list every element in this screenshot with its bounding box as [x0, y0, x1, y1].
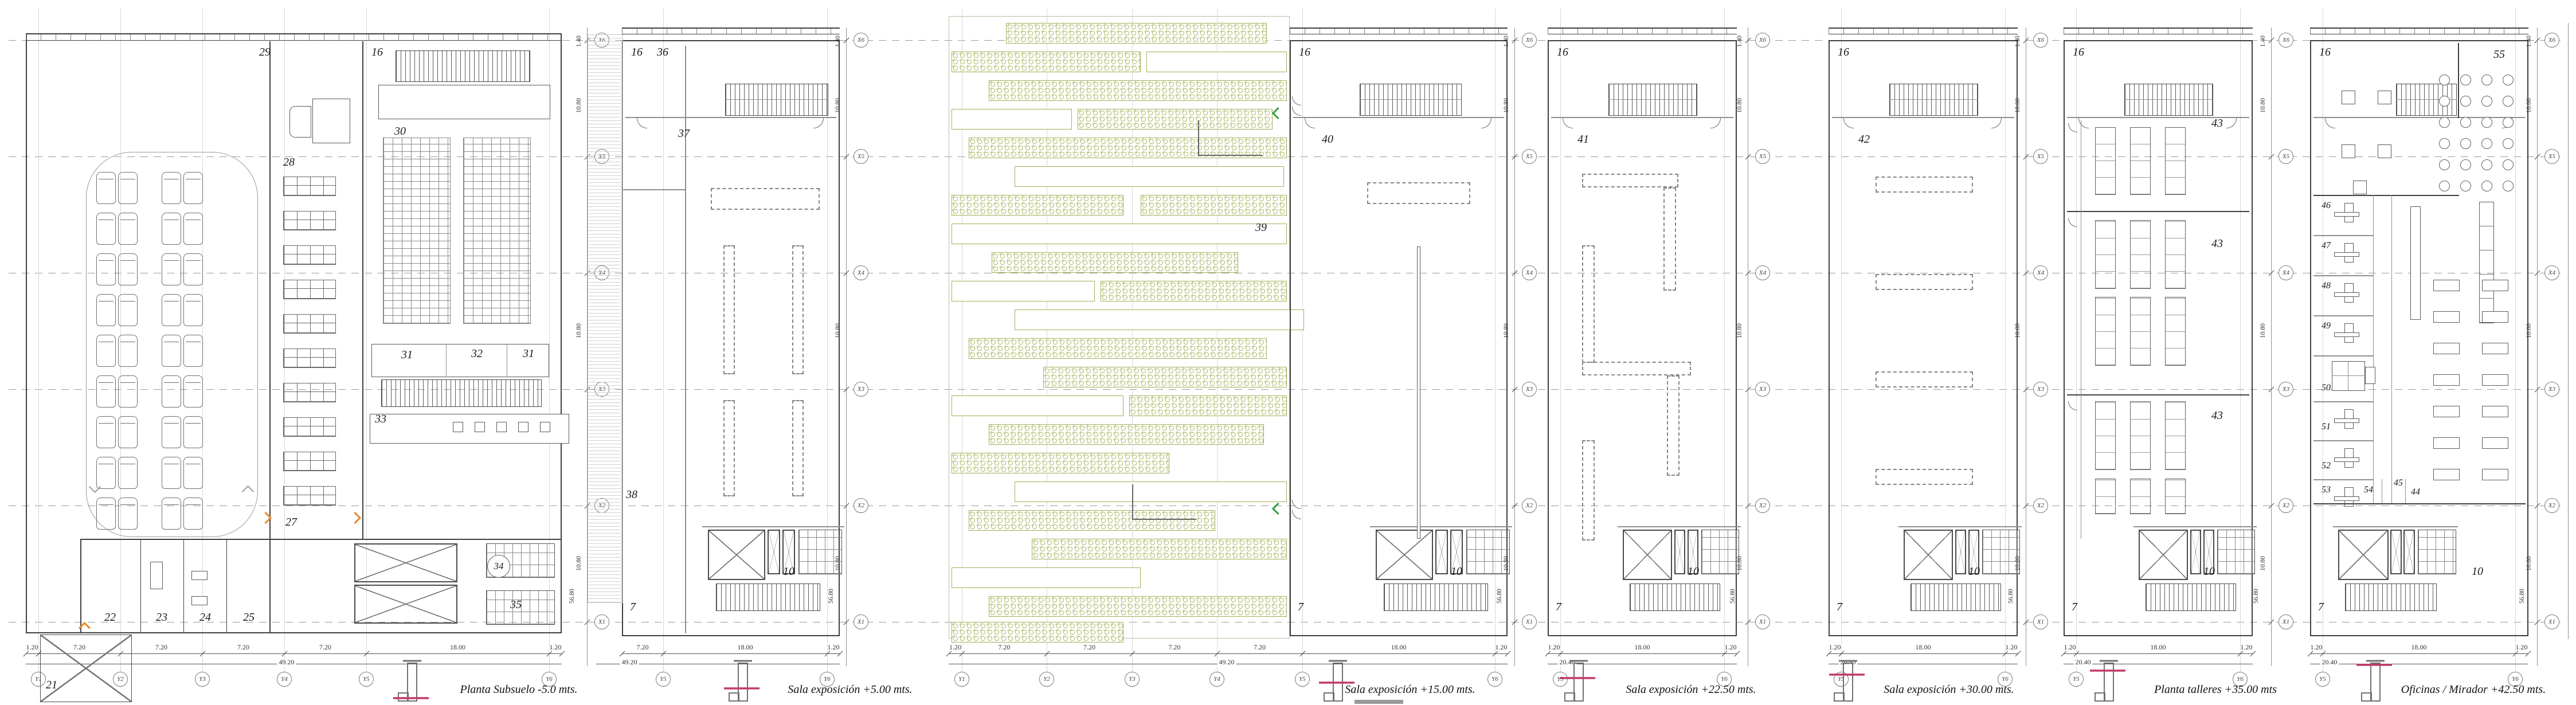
dining-table — [2433, 469, 2460, 480]
architectural-plan-sheet: 1.207.207.207.207.2018.001.2049.20Y1Y2Y3… — [0, 0, 2576, 705]
round-table — [2460, 138, 2471, 149]
plan-title: Sala exposición +30.00 mts. — [1884, 683, 2014, 696]
grid-bubble-row: X2 — [854, 498, 868, 513]
dimension-label: 18.00 — [2151, 643, 2166, 652]
dimension-label: 7.20 — [319, 643, 331, 652]
section-level-marker — [1318, 656, 1355, 704]
grid-bubble-row: X2 — [1755, 498, 1770, 513]
service-band-wall — [80, 539, 562, 540]
core-stair-run — [716, 583, 820, 611]
parking-car — [118, 416, 138, 448]
room-label: 7 — [2318, 601, 2324, 614]
plan-title: Planta talleres +35.00 mts — [2154, 683, 2277, 696]
sheet-edge-ruler — [2568, 23, 2569, 639]
exhibit-partition — [1582, 245, 1595, 363]
workshop-table — [2130, 479, 2151, 514]
dining-table — [2433, 437, 2460, 449]
parking-car — [96, 457, 116, 489]
elevator-shaft — [2338, 530, 2389, 580]
stair-mid-landing — [1889, 99, 1978, 100]
cloakroom-partition — [507, 344, 507, 377]
display-bar — [2410, 206, 2421, 320]
room-label: 22 — [104, 611, 116, 624]
tower-lobby-wall — [2313, 117, 2525, 118]
elevator-shaft — [2390, 530, 2401, 574]
stair-mid-landing — [725, 99, 828, 100]
grid-bubble-row: X2 — [2279, 498, 2293, 513]
grid-bubble-row: X2 — [2544, 498, 2559, 513]
grid-bubble-row: X5 — [2033, 149, 2048, 164]
green-terrace-band — [1032, 539, 1287, 559]
room-label: 41 — [1577, 133, 1589, 146]
corridor-wall — [362, 41, 363, 539]
room-label: 10 — [2472, 565, 2483, 578]
counter-stool — [496, 422, 507, 432]
round-table — [2481, 75, 2492, 85]
plan-title: Sala exposición +5.00 mts. — [788, 683, 912, 696]
elevator-shaft — [1674, 530, 1685, 574]
parking-car — [162, 375, 181, 408]
tower-roof-edge — [1829, 28, 2018, 34]
workshop-table — [2130, 401, 2151, 470]
work-table — [191, 596, 208, 605]
exhibit-partition — [1663, 187, 1676, 291]
counter-stool — [540, 422, 550, 432]
terrace-hatch-strip — [588, 34, 623, 603]
grid-bubble-row: X3 — [2279, 382, 2293, 397]
green-terrace-band — [992, 252, 1238, 273]
round-table — [2503, 181, 2514, 191]
room-label: 27 — [285, 516, 297, 529]
mid-stair-run — [381, 379, 542, 407]
round-table — [2481, 159, 2492, 170]
dining-table — [2482, 406, 2508, 417]
room-label: 39 — [1255, 221, 1267, 234]
round-table — [2460, 96, 2471, 107]
dimension-label: 1.20 — [1725, 643, 1737, 652]
grid-bubble-row: X5 — [1755, 149, 1770, 164]
counter-stool — [518, 422, 528, 432]
round-table — [2481, 117, 2492, 128]
parking-car — [162, 416, 181, 448]
round-table — [2503, 96, 2514, 107]
dimension-label: 18.00 — [1635, 643, 1650, 652]
exhibit-case — [711, 188, 820, 210]
room-label: 16 — [2319, 46, 2331, 59]
wc-block — [1982, 530, 2020, 574]
office-desk — [2334, 332, 2359, 337]
dimension-line — [1829, 653, 2018, 654]
dimension-total-label: 49.20 — [620, 658, 639, 667]
grid-bubble-row: X1 — [854, 614, 868, 629]
plan-title: Sala exposición +15.00 mts. — [1345, 683, 1475, 696]
dining-table — [2482, 311, 2508, 323]
room-label: 10 — [1968, 565, 1980, 578]
scale-bar — [1354, 700, 1403, 704]
dimension-total-line — [2310, 664, 2528, 664]
room-label: 45 — [2394, 478, 2403, 488]
room-label: 10 — [2203, 565, 2215, 578]
parking-car — [162, 498, 181, 530]
storage-rack — [283, 348, 336, 368]
room-label: 42 — [1858, 133, 1870, 146]
parking-car — [183, 416, 203, 448]
section-level-marker — [723, 656, 760, 704]
elevator-shaft — [1955, 530, 1966, 574]
level-dim-label: 10.80 — [1736, 98, 1743, 113]
tower-lobby-wall — [1832, 117, 2014, 118]
workshop-table — [2130, 127, 2151, 195]
dimension-label: 1.20 — [2516, 643, 2528, 652]
counter-stool — [453, 422, 463, 432]
parking-car — [96, 335, 116, 367]
exhibit-partition — [1667, 375, 1680, 476]
room-label: 44 — [2411, 487, 2420, 498]
room-label: 50 — [2321, 383, 2331, 393]
parking-car — [162, 172, 181, 204]
workshop-table — [2095, 401, 2116, 470]
auditorium-seating-right — [463, 138, 531, 324]
dimension-label: 7.20 — [237, 643, 249, 652]
grid-bubble-row: X3 — [1522, 382, 1537, 397]
parking-car — [96, 213, 116, 245]
room-label: 16 — [2073, 46, 2084, 59]
grid-bubble-row: X3 — [2033, 382, 2048, 397]
elevator-shaft — [1623, 530, 1673, 580]
annex-wall — [623, 189, 685, 190]
grid-bubble-column: Y1 — [954, 672, 969, 687]
room-label: 31 — [401, 348, 413, 362]
workshop-table — [2130, 297, 2151, 366]
truck-cab — [289, 106, 311, 138]
core-wall — [702, 526, 844, 527]
service-room-wall — [269, 539, 271, 633]
grid-bubble-column: Y5 — [2069, 672, 2084, 687]
office-desk — [2365, 367, 2375, 384]
dimension-label: 1.20 — [2311, 643, 2323, 652]
dimension-label: 7.20 — [999, 643, 1011, 652]
dimension-label: 18.00 — [2411, 643, 2427, 652]
green-terrace-band — [952, 109, 1072, 130]
dimension-line — [949, 653, 1508, 654]
level-dim-label: 1.40 — [576, 36, 582, 47]
dimension-label: 1.20 — [1548, 643, 1560, 652]
parking-car — [162, 213, 181, 245]
office-partition — [2313, 315, 2373, 316]
dimension-label: 1.20 — [2064, 643, 2076, 652]
dimension-label: 7.20 — [1083, 643, 1095, 652]
workshop-table — [2165, 127, 2186, 195]
tower-roof-edge — [622, 28, 840, 34]
dimension-total-label: 49.20 — [277, 658, 296, 667]
parking-car — [183, 498, 203, 530]
office-partition — [2313, 401, 2373, 402]
grid-bubble-column: Y4 — [277, 672, 292, 687]
dining-table — [2433, 311, 2460, 323]
exhibit-case — [1367, 182, 1470, 204]
green-terrace-band — [989, 424, 1264, 445]
level-dimension-line — [2537, 28, 2538, 666]
truck-trailer — [312, 99, 350, 143]
green-terrace-band — [969, 510, 1215, 531]
round-table — [2460, 75, 2471, 85]
elevator-shaft — [1435, 530, 1448, 574]
grid-bubble-row: X4 — [2279, 265, 2293, 280]
room-label: 36 — [657, 46, 668, 59]
parking-car — [96, 375, 116, 408]
square-table — [2342, 144, 2355, 158]
parking-car — [118, 457, 138, 489]
office-desk — [2334, 252, 2359, 257]
exhibit-case — [723, 245, 735, 374]
room-label: 49 — [2321, 321, 2331, 331]
round-table — [2439, 159, 2450, 170]
exhibit-case — [1876, 274, 1973, 290]
room-label: 53 — [2321, 485, 2331, 495]
section-level-marker — [393, 656, 429, 704]
level-dimension-line — [846, 28, 847, 666]
parking-car — [162, 294, 181, 326]
dining-table — [2433, 374, 2460, 386]
round-table — [2439, 181, 2450, 191]
dimension-label: 1.20 — [2241, 643, 2253, 652]
round-table — [2439, 117, 2450, 128]
counter-stool — [475, 422, 485, 432]
round-table — [2503, 75, 2514, 85]
exhibit-case — [1876, 469, 1973, 485]
room-label: 37 — [678, 127, 690, 140]
parking-car — [183, 253, 203, 285]
room-label: 25 — [243, 611, 255, 624]
round-table — [2481, 138, 2492, 149]
parking-car — [183, 172, 203, 204]
dining-table — [2482, 374, 2508, 386]
terrace-step-line — [1198, 155, 1262, 156]
storage-rack — [283, 211, 336, 230]
meeting-table-line — [2348, 361, 2348, 391]
tower-roof-edge — [2310, 28, 2528, 34]
green-terrace-band — [952, 567, 1141, 588]
elevator-shaft — [2139, 530, 2189, 580]
workshop-wall — [2067, 211, 2249, 212]
grid-bubble-row: X6 — [2544, 33, 2559, 48]
grid-bubble-row: X1 — [2544, 614, 2559, 629]
room-label: 46 — [2321, 201, 2331, 211]
dining-table — [2433, 406, 2460, 417]
room-label: 38 — [626, 488, 637, 502]
office-corridor-wall — [2391, 195, 2392, 503]
tower-stair-run — [1360, 84, 1462, 116]
parking-car — [183, 335, 203, 367]
exhibit-partition — [1582, 440, 1595, 540]
parking-car — [183, 213, 203, 245]
level-dimension-line — [1748, 28, 1748, 666]
room-label: 40 — [1322, 133, 1333, 146]
dimension-line — [2064, 653, 2253, 654]
dining-table — [2433, 343, 2460, 354]
level-dim-label: 1.40 — [2260, 36, 2266, 47]
round-table — [2460, 159, 2471, 170]
room-label: 54 — [2364, 485, 2373, 495]
room-label: 55 — [2493, 48, 2505, 61]
grid-bubble-column: Y5 — [1295, 672, 1310, 687]
room-label: 24 — [199, 611, 211, 624]
grid-bubble-column: Y3 — [195, 672, 210, 687]
parking-car — [183, 375, 203, 408]
dimension-total-label: 49.20 — [1217, 658, 1236, 667]
office-partition — [2313, 275, 2373, 276]
section-level-marker — [2089, 656, 2126, 704]
grid-bubble-row: X5 — [2544, 149, 2559, 164]
storage-rack — [283, 245, 336, 265]
parking-car — [162, 457, 181, 489]
level-dim-label: 1.40 — [1736, 36, 1743, 47]
dimension-line — [2310, 653, 2528, 654]
core-wall — [1618, 526, 1741, 527]
dimension-total-label: 20.40 — [2320, 658, 2339, 667]
green-terrace-band — [952, 195, 1123, 216]
round-table — [2503, 117, 2514, 128]
room-label: 30 — [394, 125, 406, 138]
office-partition — [2313, 479, 2373, 480]
tower-stair-run — [725, 84, 828, 116]
green-terrace-band — [952, 453, 1169, 473]
storage-rack — [283, 177, 336, 196]
room-label: 29 — [259, 46, 271, 59]
level-dim-label: 10.80 — [576, 98, 582, 113]
room-label: 33 — [375, 413, 386, 426]
dimension-label: 18.00 — [738, 643, 753, 652]
workshop-table — [2165, 401, 2186, 470]
grid-bubble-row: X3 — [1755, 382, 1770, 397]
room-label: 47 — [2321, 241, 2331, 251]
green-terrace-band — [1015, 481, 1287, 502]
grid-bubble-column: Y6 — [1487, 672, 1502, 687]
grid-bubble-row: X6 — [2279, 33, 2293, 48]
dining-table — [2482, 343, 2508, 354]
dimension-label: 7.20 — [637, 643, 649, 652]
grid-bubble-row: X6 — [2033, 33, 2048, 48]
meeting-table-line — [2332, 375, 2365, 376]
office-partition — [2313, 235, 2373, 236]
storage-rack — [283, 417, 336, 437]
square-table — [2378, 144, 2391, 158]
square-table — [2342, 91, 2355, 104]
workshop-table — [2095, 479, 2116, 514]
green-terrace-band — [1006, 23, 1267, 44]
stair-mid-landing — [1360, 99, 1462, 100]
dimension-label: 1.20 — [1829, 643, 1841, 652]
dimension-label: 18.00 — [1916, 643, 1931, 652]
exhibit-case — [792, 245, 804, 374]
machine-unit — [150, 562, 163, 589]
square-table — [2353, 181, 2367, 194]
level-dim-label: 10.80 — [576, 323, 582, 338]
square-table — [2378, 91, 2391, 104]
dining-zone-wall — [2313, 503, 2526, 504]
wc-block — [798, 530, 842, 574]
tower-lobby-wall — [625, 117, 836, 118]
tower-stair-run — [1608, 84, 1697, 116]
exhibit-partition — [1582, 362, 1691, 375]
level-dim-label: 10.80 — [2260, 556, 2266, 571]
green-terrace-band — [952, 52, 1141, 72]
elevator-shaft — [708, 530, 765, 580]
room-label: 48 — [2321, 281, 2331, 291]
dining-table — [2433, 280, 2460, 291]
dimension-label: 1.20 — [2006, 643, 2018, 652]
terrace-step-line — [1132, 484, 1133, 520]
tower-stair-run — [1889, 84, 1978, 116]
green-terrace-band — [1078, 109, 1273, 130]
wc-block — [1701, 530, 1739, 574]
stair-mid-landing — [1608, 99, 1697, 100]
grid-bubble-column: Y5 — [2315, 672, 2330, 687]
parking-car — [118, 498, 138, 530]
dimension-label: 7.20 — [1169, 643, 1181, 652]
exhibit-case — [723, 400, 735, 496]
level-dimension-line — [2026, 28, 2026, 666]
room-label: 16 — [1299, 46, 1310, 59]
office-desk — [2334, 292, 2359, 297]
office-desk — [2334, 457, 2359, 462]
grid-bubble-column: Y5 — [656, 672, 671, 687]
exhibit-case — [1876, 177, 1973, 193]
office-corridor-wall — [2373, 195, 2374, 503]
storage-rack — [283, 452, 336, 471]
dimension-label: 1.20 — [550, 643, 562, 652]
tower-lobby-wall — [1293, 117, 1504, 118]
grid-bubble-row: X2 — [2033, 498, 2048, 513]
wc-block — [2418, 530, 2456, 574]
elevator-shaft — [1904, 530, 1953, 580]
storage-rack — [283, 314, 336, 334]
round-table — [2481, 181, 2492, 191]
green-terrace-band — [952, 281, 1095, 301]
green-terrace-band — [1146, 52, 1287, 72]
mirador-wall — [2458, 43, 2459, 118]
office-desk — [2334, 418, 2359, 423]
parking-car — [162, 335, 181, 367]
green-terrace-band — [1015, 166, 1284, 187]
grid-bubble-row: X5 — [854, 149, 868, 164]
parking-car — [96, 172, 116, 204]
plan-title: Planta Subsuelo -5.0 mts. — [460, 683, 578, 696]
grid-bubble-row: X4 — [1522, 265, 1537, 280]
core-wall — [2133, 526, 2257, 527]
green-terrace-band — [989, 80, 1287, 101]
parking-car — [96, 498, 116, 530]
service-room-wall — [183, 539, 184, 633]
dining-table — [2482, 437, 2508, 449]
green-terrace-band — [1141, 195, 1287, 216]
grid-bubble-row: X4 — [2033, 265, 2048, 280]
workshop-table — [2165, 220, 2186, 289]
parking-car — [162, 253, 181, 285]
room-label: 7 — [1556, 601, 1561, 614]
elevator-shaft — [1376, 530, 1433, 580]
room-label: 10 — [1688, 565, 1699, 578]
round-table — [2503, 159, 2514, 170]
parking-car — [118, 335, 138, 367]
room-label: 28 — [283, 156, 295, 169]
service-room-wall — [80, 539, 81, 633]
grid-bubble-row: X1 — [594, 614, 609, 629]
grid-bubble-row: X6 — [1522, 33, 1537, 48]
parking-car — [118, 294, 138, 326]
room-label: 52 — [2321, 461, 2331, 471]
workshop-wall — [2067, 394, 2249, 395]
